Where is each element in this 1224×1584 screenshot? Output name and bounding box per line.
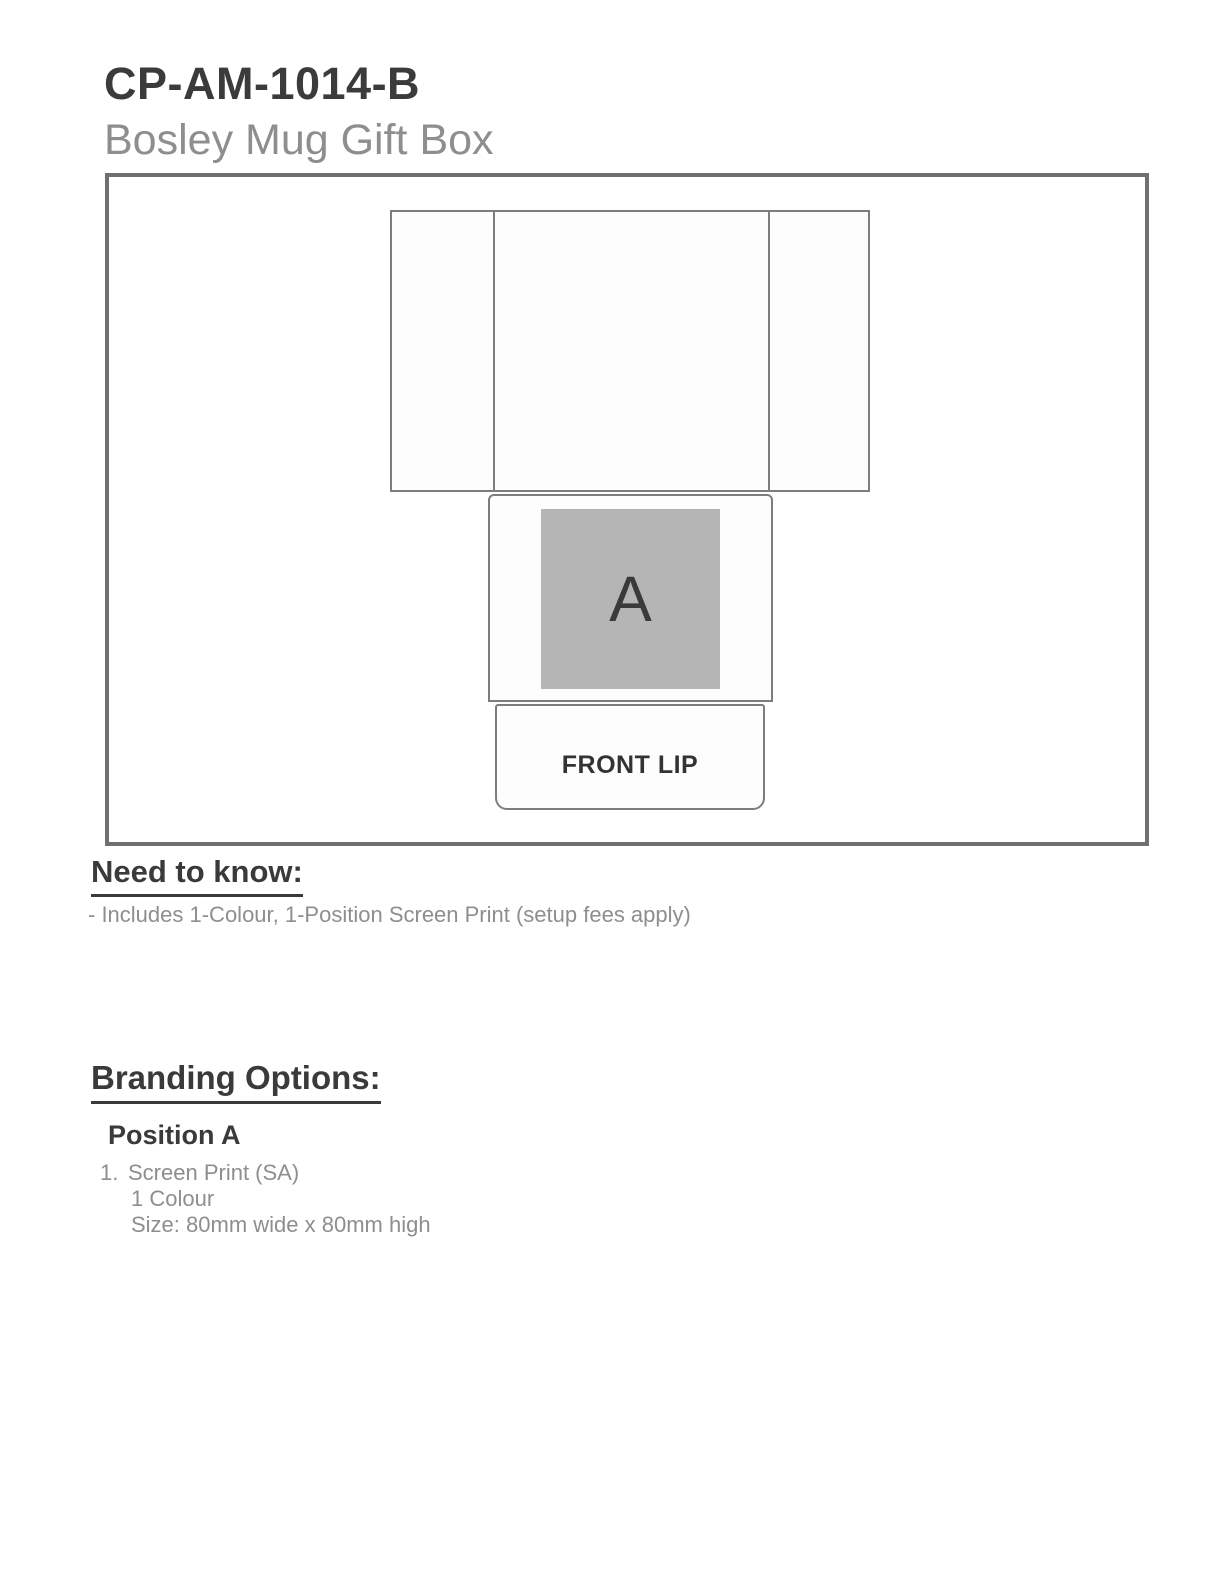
branding-size-line: Size: 80mm wide x 80mm high <box>131 1212 431 1238</box>
panel-fold-line-right <box>768 212 770 490</box>
box-top-panels <box>390 210 870 492</box>
product-code-title: CP-AM-1014-B <box>104 58 420 110</box>
branding-options-heading: Branding Options: <box>91 1059 381 1104</box>
front-lip-label: FRONT LIP <box>562 751 698 780</box>
product-name-subtitle: Bosley Mug Gift Box <box>104 116 494 165</box>
front-print-panel: A <box>488 494 773 702</box>
panel-fold-line-left <box>493 212 495 490</box>
branding-options-list: 1.Screen Print (SA) 1 Colour Size: 80mm … <box>100 1160 431 1238</box>
print-area-a: A <box>541 509 720 689</box>
front-lip-panel: FRONT LIP <box>495 704 765 810</box>
branding-colour-line: 1 Colour <box>131 1186 431 1212</box>
branding-method-label: Screen Print (SA) <box>128 1160 299 1185</box>
branding-item-number: 1. <box>100 1160 128 1186</box>
dieline-diagram-frame: A FRONT LIP <box>105 173 1149 846</box>
position-a-label: A <box>609 562 652 636</box>
spec-sheet-page: CP-AM-1014-B Bosley Mug Gift Box A FRONT… <box>0 0 1224 1584</box>
branding-method-line: 1.Screen Print (SA) <box>100 1160 431 1186</box>
need-to-know-note: - Includes 1-Colour, 1-Position Screen P… <box>88 902 691 928</box>
position-a-title: Position A <box>108 1120 241 1151</box>
need-to-know-heading: Need to know: <box>91 854 303 897</box>
